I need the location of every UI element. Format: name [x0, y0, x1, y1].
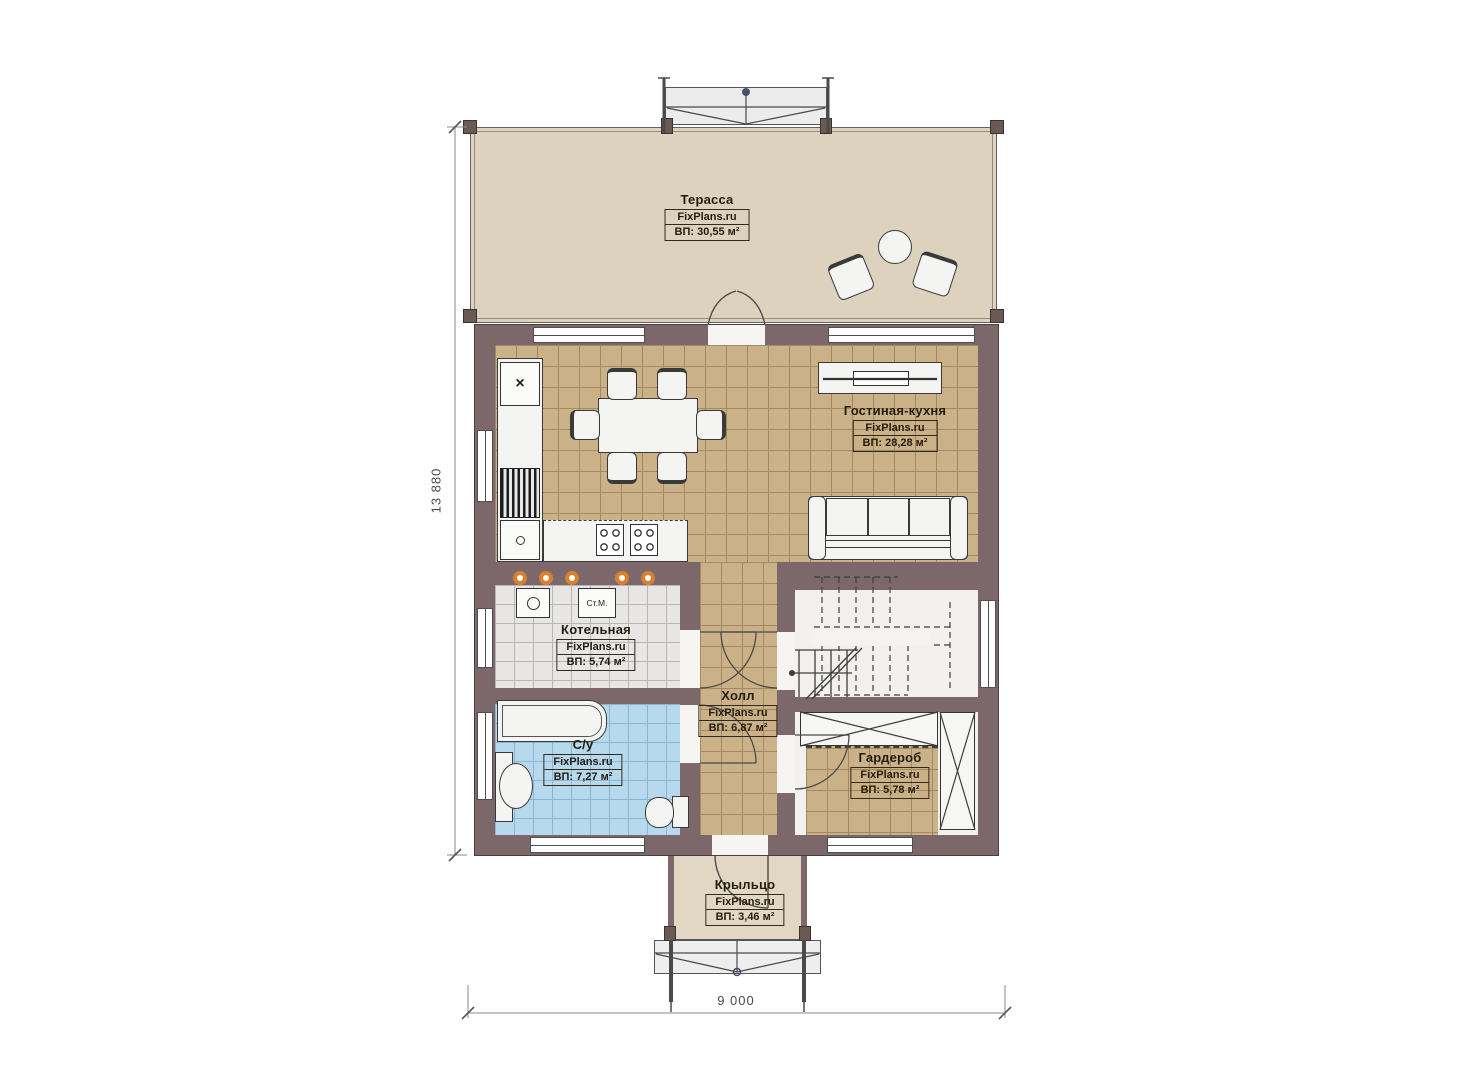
room-label-living: Гостиная-кухня FixPlans.ru ВП: 28,28 м² [844, 403, 946, 452]
sink-drain-icon: × [515, 375, 524, 393]
sofa-cushion [909, 498, 950, 536]
room-label-wardrobe: Гардероб FixPlans.ru ВП: 5,78 м² [850, 750, 929, 799]
room-area-label: ВП: 5,74 м² [557, 655, 634, 670]
wardrobe-door-gap [777, 735, 795, 793]
fridge [500, 468, 540, 518]
window-bottom-left [530, 837, 645, 853]
window-top-left [533, 327, 645, 343]
stove-burner-block [630, 524, 658, 556]
terrace-post [990, 120, 1004, 134]
watermark-label: FixPlans.ru [851, 768, 928, 783]
window-right-stairs [980, 600, 996, 688]
room-info-box: FixPlans.ru ВП: 3,46 м² [705, 894, 784, 926]
window-bottom-right [827, 837, 913, 853]
oven-knob-icon [516, 536, 525, 545]
wall-light-dot [615, 571, 629, 585]
dining-chair [657, 452, 687, 484]
dining-chair [570, 410, 600, 440]
sofa-cushion [868, 498, 909, 536]
water-heater-icon [527, 597, 540, 610]
window-top-right [828, 327, 975, 343]
sofa-armrest [808, 496, 826, 560]
stairs-floor [795, 590, 978, 697]
wall-right [978, 325, 998, 855]
watermark-label: FixPlans.ru [699, 706, 776, 721]
room-area-label: ВП: 6,87 м² [699, 721, 776, 736]
room-name: С/у [543, 737, 622, 752]
entry-door-gap [712, 835, 768, 855]
watermark-label: FixPlans.ru [854, 421, 937, 436]
stairs-door-gap [777, 632, 795, 690]
dimension-width: 9 000 [706, 993, 766, 1008]
toilet-tank [672, 796, 689, 828]
floor-plan: × Ст.М. [0, 0, 1473, 1080]
room-info-box: FixPlans.ru ВП: 30,55 м² [665, 209, 750, 241]
room-label-hall: Холл FixPlans.ru ВП: 6,87 м² [698, 688, 777, 737]
wall-hall-left [680, 562, 700, 835]
wall-light-dot [641, 571, 655, 585]
terrace-rail-post [661, 118, 673, 134]
sofa-cushion [826, 498, 868, 536]
room-label-boiler: Котельная FixPlans.ru ВП: 5,74 м² [556, 622, 635, 671]
porch-post [664, 926, 676, 941]
room-name: Холл [698, 688, 777, 703]
oven [500, 520, 540, 560]
watermark-label: FixPlans.ru [706, 895, 783, 910]
washing-machine: Ст.М. [578, 588, 616, 618]
room-area-label: ВП: 7,27 м² [544, 770, 621, 785]
room-name: Гардероб [850, 750, 929, 765]
room-area-label: ВП: 28,28 м² [854, 436, 937, 451]
wall-living-stairs [795, 562, 978, 590]
sofa-armrest [950, 496, 968, 560]
room-label-terrace: Терасса FixPlans.ru ВП: 30,55 м² [665, 192, 750, 241]
room-area-label: ВП: 5,78 м² [851, 783, 928, 798]
dining-table [598, 398, 698, 453]
porch-steps [654, 940, 821, 974]
dining-chair [607, 452, 637, 484]
room-info-box: FixPlans.ru ВП: 5,78 м² [850, 767, 929, 799]
terrace-post [463, 309, 477, 323]
window-left-boiler [477, 608, 493, 668]
wall-stairs-wardrobe [777, 697, 978, 712]
wardrobe-cabinet-right [940, 712, 975, 830]
terrace-rail-post [820, 118, 832, 134]
sofa-back [826, 540, 950, 548]
window-left-bath [477, 712, 493, 800]
terrace-post [990, 309, 1004, 323]
terrace-door-gap [708, 325, 765, 345]
room-name: Крыльцо [705, 877, 784, 892]
toilet-bowl [645, 797, 674, 828]
kitchen-sink: × [500, 362, 540, 406]
terrace-table [878, 230, 912, 264]
room-label-porch: Крыльцо FixPlans.ru ВП: 3,46 м² [705, 877, 784, 926]
wardrobe-cabinet-top [800, 712, 938, 746]
terrace-steps [665, 87, 827, 125]
bath-sink [499, 763, 533, 809]
window-left-kitchen [477, 430, 493, 502]
room-area-label: ВП: 3,46 м² [706, 910, 783, 925]
bathtub [497, 700, 607, 742]
room-name: Терасса [665, 192, 750, 207]
tv [853, 371, 909, 386]
boiler-door-gap [680, 630, 700, 688]
room-name: Гостиная-кухня [844, 403, 946, 418]
stove-burner-block [596, 524, 624, 556]
room-info-box: FixPlans.ru ВП: 6,87 м² [698, 705, 777, 737]
dining-chair [607, 368, 637, 400]
room-name: Котельная [556, 622, 635, 637]
room-info-box: FixPlans.ru ВП: 28,28 м² [853, 420, 938, 452]
bath-door-gap [680, 705, 700, 763]
watermark-label: FixPlans.ru [557, 640, 634, 655]
wall-light-dot [565, 571, 579, 585]
washing-machine-label: Ст.М. [587, 598, 608, 608]
dining-chair [696, 410, 726, 440]
terrace-post [463, 120, 477, 134]
wall-light-dot [513, 571, 527, 585]
room-area-label: ВП: 30,55 м² [666, 225, 749, 240]
wall-light-dot [539, 571, 553, 585]
room-info-box: FixPlans.ru ВП: 5,74 м² [556, 639, 635, 671]
bathtub-inner [502, 705, 602, 737]
porch-post [799, 926, 811, 941]
room-info-box: FixPlans.ru ВП: 7,27 м² [543, 754, 622, 786]
water-heater [516, 588, 550, 618]
dimension-height: 13 880 [429, 461, 444, 521]
watermark-label: FixPlans.ru [544, 755, 621, 770]
room-label-bath: С/у FixPlans.ru ВП: 7,27 м² [543, 737, 622, 786]
watermark-label: FixPlans.ru [666, 210, 749, 225]
dining-chair [657, 368, 687, 400]
